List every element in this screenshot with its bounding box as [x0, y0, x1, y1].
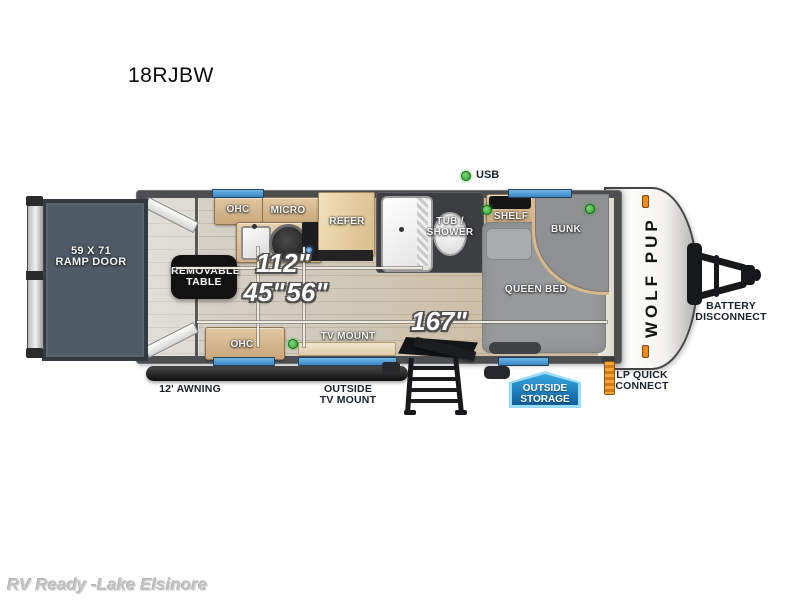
shelf-label: SHELF: [486, 211, 536, 222]
awning-label: 12' AWNING: [150, 384, 230, 395]
undercarriage-part: [382, 362, 400, 374]
undercarriage-part: [484, 366, 510, 379]
marker-light-icon: [642, 195, 649, 208]
usb-legend-icon: [461, 171, 471, 181]
hitch-arm: [697, 252, 747, 272]
step-foot: [455, 410, 467, 415]
coupler-knob: [752, 269, 761, 281]
step-rung: [412, 366, 458, 370]
usb-indicator-icon: [288, 339, 298, 349]
outside-tv-mount-label: OUTSIDE TV MOUNT: [316, 384, 380, 406]
micro-label: MICRO: [263, 205, 313, 216]
tub-shower-label: TUB / SHOWER: [414, 216, 486, 238]
page-title: 18RJBW: [128, 64, 214, 88]
usb-indicator-icon: [585, 204, 595, 214]
hitch-arm: [697, 280, 747, 300]
bed-storage-item: [489, 342, 541, 354]
marker-light-icon: [642, 345, 649, 358]
battery-disconnect-label: BATTERY DISCONNECT: [689, 301, 773, 323]
pillow: [486, 228, 532, 260]
queen-bed-label: QUEEN BED: [500, 284, 572, 295]
ramp-corner: [26, 196, 43, 206]
dimension-56: 56": [272, 279, 342, 305]
step-rung: [409, 399, 461, 403]
ramp-door-label: 59 X 71 RAMP DOOR: [46, 246, 136, 268]
lp-quick-connect-label: LP QUICK CONNECT: [608, 370, 676, 392]
refer-label: REFER: [320, 216, 374, 227]
floorplan-page: 18RJBW USB WOLF PUP BATTERY DISCONNECT 5…: [0, 0, 800, 600]
dimension-112: 112": [243, 250, 323, 276]
usb-legend-label: USB: [476, 169, 499, 182]
dimension-167: 167": [399, 308, 479, 334]
window-strip: [508, 189, 572, 198]
drain-icon: [399, 227, 404, 232]
window-strip: [213, 357, 275, 366]
outside-storage-badge: OUTSIDE STORAGE: [509, 371, 581, 408]
dealer-watermark: RV Ready -Lake Elsinore: [7, 575, 207, 595]
faucet-icon: [252, 224, 257, 229]
ramp-corner: [26, 348, 43, 358]
tv-mount-shelf: [298, 342, 396, 356]
window-strip: [498, 357, 549, 366]
step-rung: [411, 377, 459, 381]
refrigerator-base: [318, 250, 373, 261]
step-foot: [404, 410, 416, 415]
ramp-door: [42, 199, 148, 361]
ramp-frame-rail: [27, 205, 44, 277]
tv-mount-label: TV MOUNT: [316, 331, 380, 342]
usb-indicator-icon: [482, 205, 492, 215]
ohc-top-label: OHC: [214, 204, 262, 215]
ramp-hinge: [26, 271, 43, 280]
window-strip: [212, 189, 264, 198]
ohc-bottom-label: OHC: [218, 339, 266, 350]
wolf-pup-logo: WOLF PUP: [640, 214, 664, 340]
bunk-label: BUNK: [540, 224, 592, 235]
step-rung: [410, 388, 460, 392]
ramp-frame-rail: [27, 279, 44, 351]
awning-tube: [146, 366, 408, 381]
